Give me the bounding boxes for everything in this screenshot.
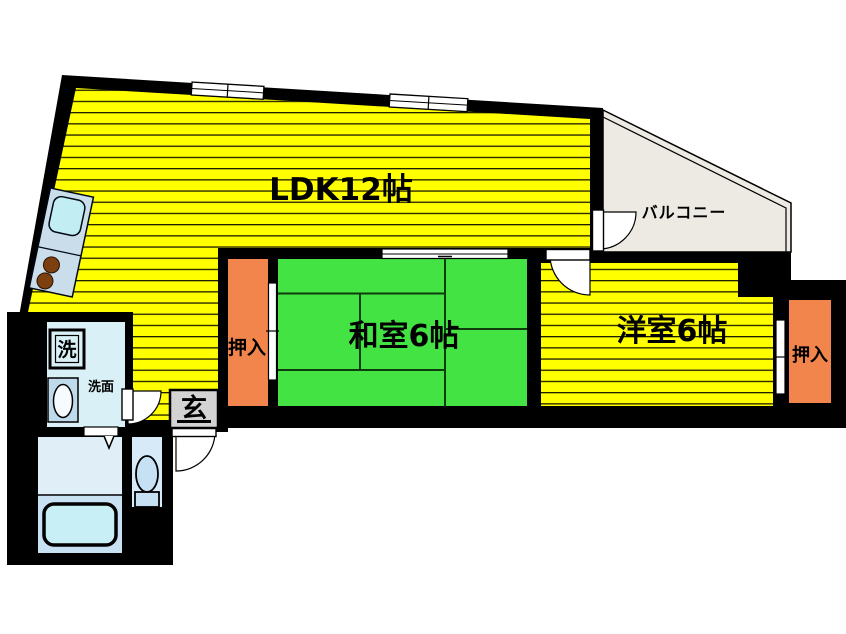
ldk-label: LDK12帖 bbox=[269, 172, 413, 208]
vanity-basin bbox=[54, 385, 73, 418]
washroom-label: 洗面 bbox=[88, 379, 114, 395]
floor-plan: LDK12帖 バルコニー 和室6帖 洋室6帖 押入 押入 玄 洗 洗面 bbox=[0, 0, 846, 634]
western-room-label: 洋室6帖 bbox=[617, 314, 728, 349]
washing-machine-label: 洗 bbox=[57, 338, 76, 361]
bathtub bbox=[44, 504, 116, 545]
entrance-label: 玄 bbox=[181, 393, 207, 424]
floor-plan-canvas: LDK12帖 バルコニー 和室6帖 洋室6帖 押入 押入 玄 洗 洗面 bbox=[0, 0, 846, 634]
japanese-room-sliding-door bbox=[382, 249, 508, 259]
japanese-room-label: 和室6帖 bbox=[349, 319, 460, 354]
closet-right-label: 押入 bbox=[792, 344, 828, 366]
toilet-bowl bbox=[136, 456, 158, 492]
kitchen-sink bbox=[48, 195, 87, 237]
toilet-tank bbox=[135, 492, 159, 507]
closet-left-label: 押入 bbox=[228, 336, 266, 359]
balcony-label: バルコニー bbox=[642, 203, 727, 222]
closet-left-sliding-door bbox=[266, 283, 279, 380]
closet-left-room bbox=[228, 259, 268, 406]
bathroom-door-bar bbox=[84, 427, 118, 436]
